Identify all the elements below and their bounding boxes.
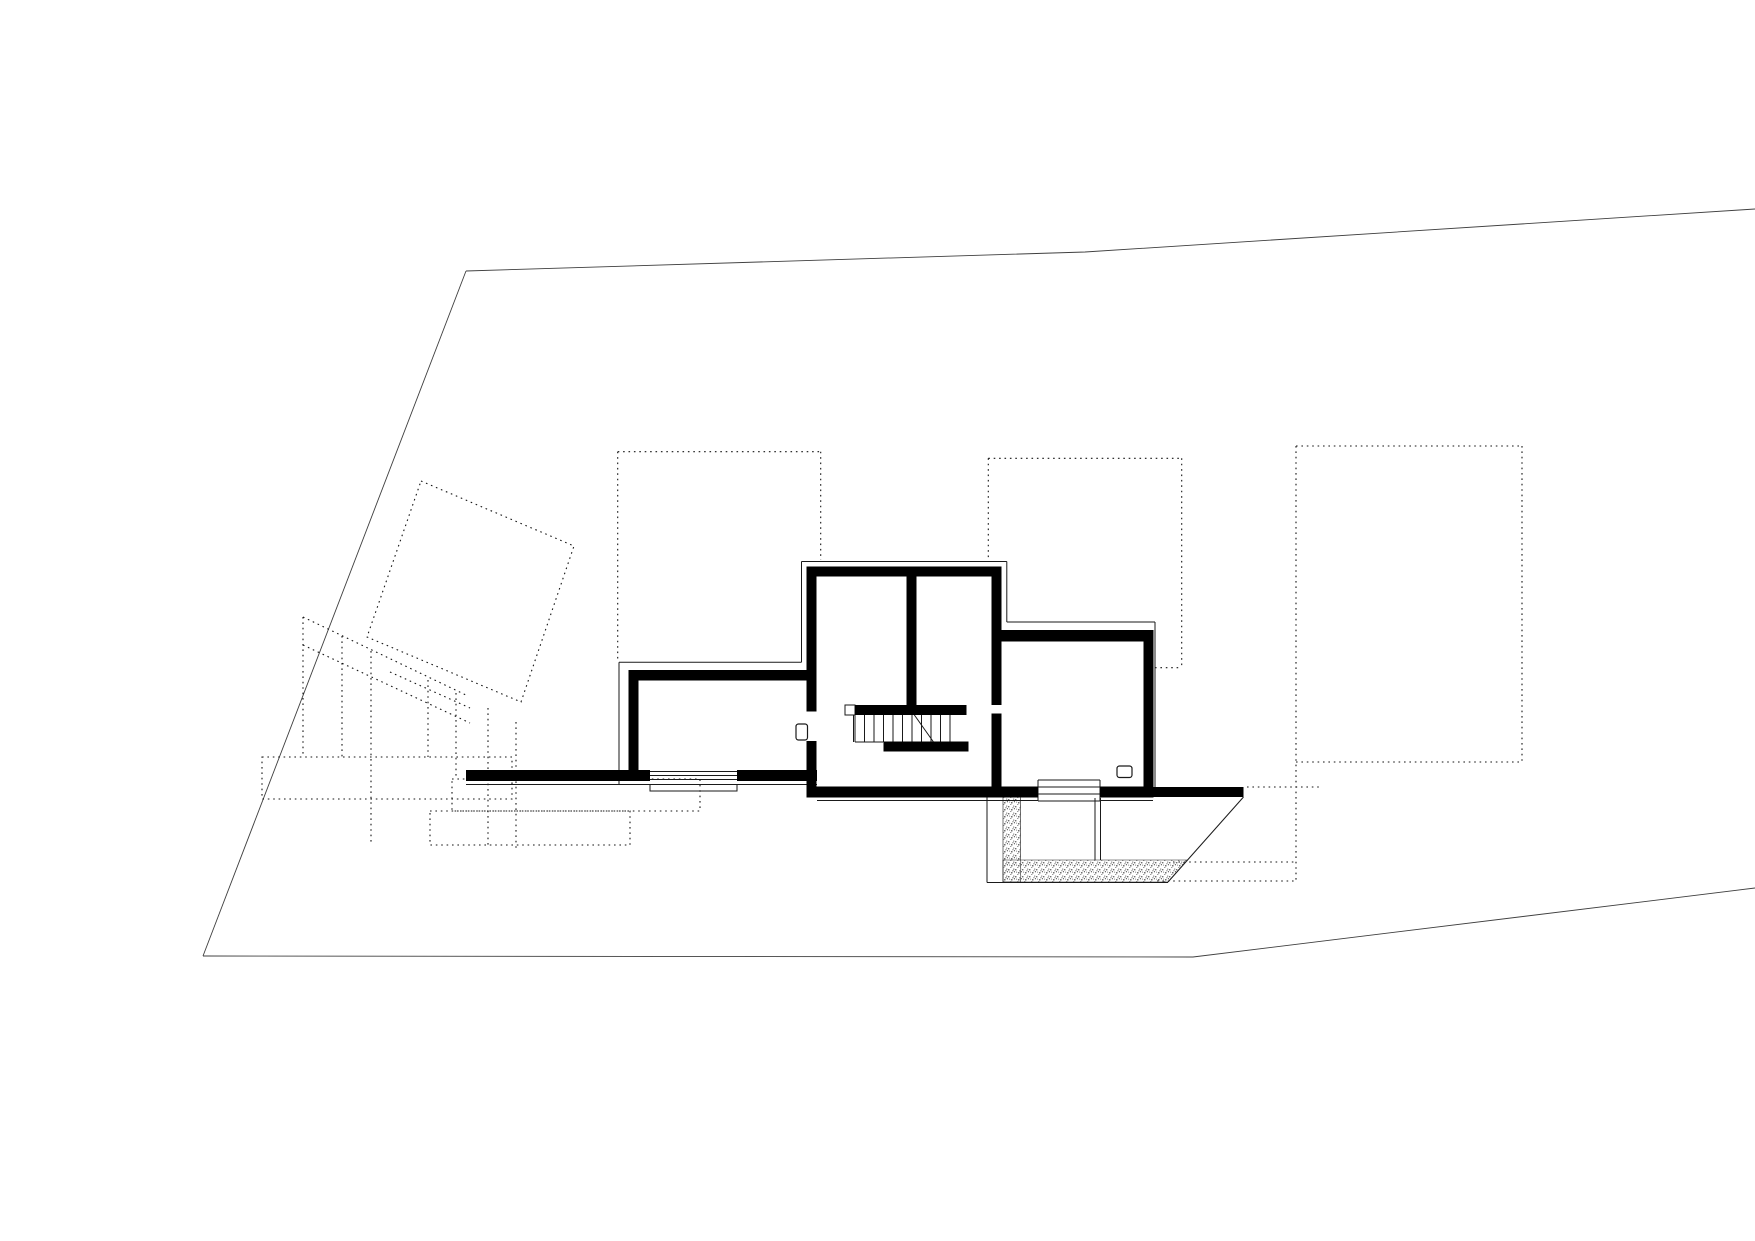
floor-plan-drawing <box>0 0 1755 1241</box>
plan-sheet <box>0 0 1755 1241</box>
paper-background <box>0 0 1755 1241</box>
